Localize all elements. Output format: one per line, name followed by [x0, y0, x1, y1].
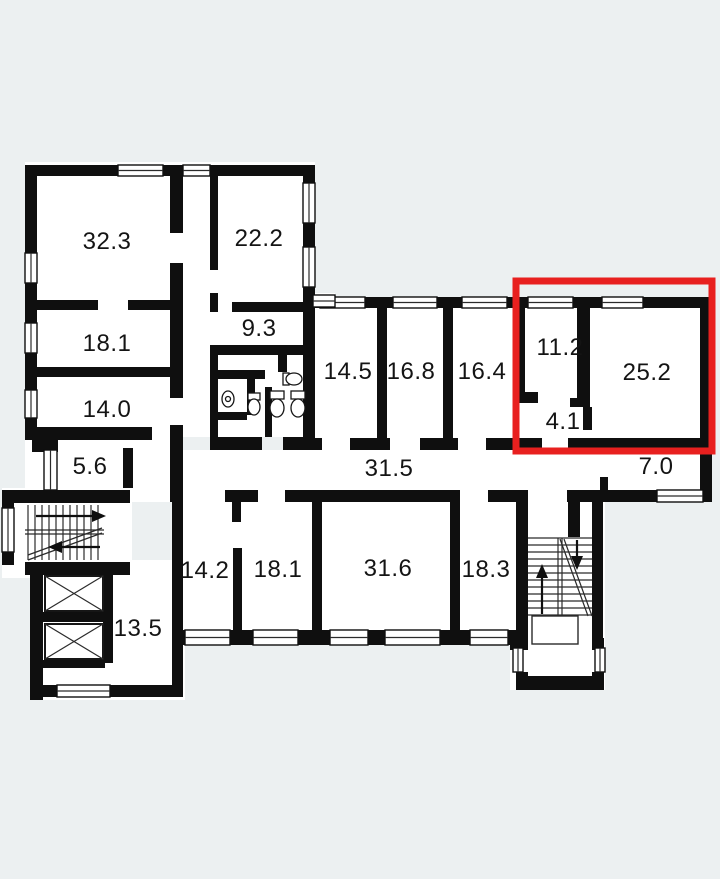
room-label-31-6: 31.6 [364, 555, 413, 583]
room-label-18-1-lower: 18.1 [254, 556, 303, 584]
corridor-label-5-6: 5.6 [73, 453, 108, 481]
floorplan-drawing [0, 0, 720, 879]
room-label-16-4: 16.4 [458, 358, 507, 386]
room-label-9-3: 9.3 [242, 315, 277, 343]
room-label-14-0: 14.0 [83, 396, 132, 424]
room-label-13-5: 13.5 [114, 615, 163, 643]
toilet-icon [291, 391, 305, 417]
room-label-14-5: 14.5 [324, 358, 373, 386]
room-label-14-2: 14.2 [181, 557, 230, 585]
toilet-icon [248, 393, 260, 415]
floorplan-canvas: 32.3 22.2 18.1 9.3 14.0 14.5 16.8 16.4 1… [0, 0, 720, 879]
room-label-11-2: 11.2 [537, 334, 584, 362]
room-label-4-1: 4.1 [546, 408, 581, 436]
corridor-label-31-5: 31.5 [365, 455, 414, 483]
room-label-16-8: 16.8 [387, 358, 436, 386]
toilet-icon [270, 391, 284, 417]
room-label-18-1-upper: 18.1 [83, 330, 132, 358]
room-label-22-2: 22.2 [235, 225, 284, 253]
room-label-25-2: 25.2 [623, 359, 672, 387]
room-label-32-3: 32.3 [83, 228, 132, 256]
room-label-18-3: 18.3 [462, 556, 511, 584]
toilet-icon [283, 373, 302, 385]
corridor-label-7-0: 7.0 [639, 453, 674, 481]
sink-icon [222, 391, 234, 407]
